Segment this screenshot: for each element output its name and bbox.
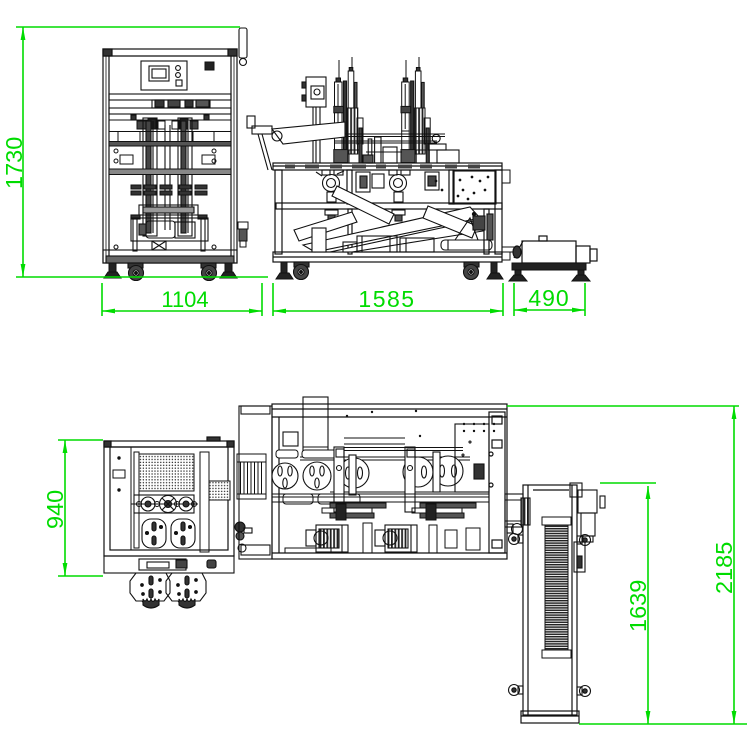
svg-text:490: 490: [528, 285, 569, 311]
svg-text:1639: 1639: [625, 580, 651, 632]
svg-text:1585: 1585: [358, 286, 415, 312]
svg-text:1104: 1104: [161, 287, 208, 312]
svg-text:1730: 1730: [1, 137, 27, 189]
svg-text:2185: 2185: [711, 542, 737, 594]
svg-text:940: 940: [42, 490, 68, 529]
